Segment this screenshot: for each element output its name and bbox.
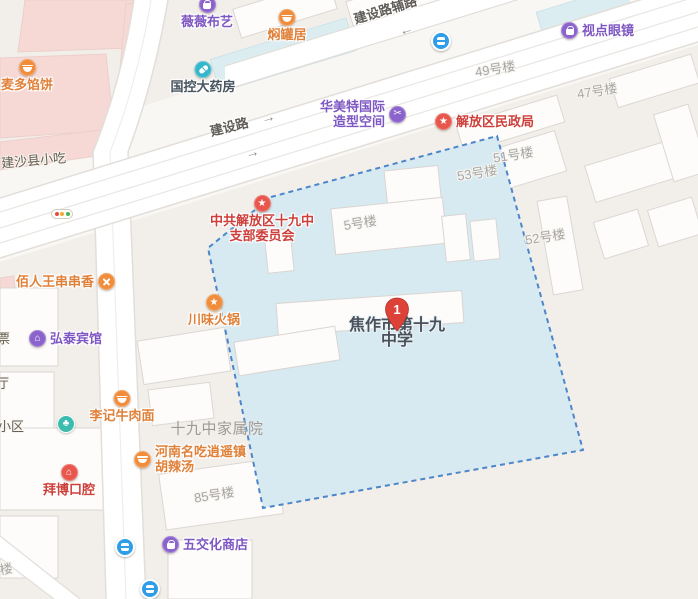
map-canvas[interactable]: 建设路辅路 建设路 → → ← 薇薇布艺 焖罐居 麦多馅饼 国控大药房 视点眼镜… (0, 0, 698, 599)
pin-number: 1 (384, 302, 410, 317)
clinic-house-icon: ⌂ (60, 464, 77, 481)
shopping-bag-icon (162, 536, 179, 553)
poi-eyeglasses-shop[interactable]: 视点眼镜 (561, 22, 634, 39)
poi-pharmacy[interactable]: 国控大药房 (170, 61, 235, 94)
area-label: 十九中家属院 (170, 418, 263, 439)
scissors-icon: ✂ (389, 106, 406, 123)
government-star-icon: ★ (435, 113, 452, 130)
location-pin-icon[interactable]: 1 (384, 297, 410, 338)
area-label: 小区 (0, 416, 24, 435)
food-bowl-icon (113, 390, 130, 407)
poi-hulatang-restaurant[interactable]: 河南名吃逍遥镇 胡辣汤 (134, 444, 246, 474)
area-label: 票 (0, 328, 10, 347)
poi-bairenwang-skewers[interactable]: 佰人王串串香 (16, 273, 115, 290)
government-star-icon: ★ (253, 195, 270, 212)
poi-hongtai-hotel[interactable]: ⌂ 弘泰宾馆 (29, 330, 102, 347)
park-tree-icon[interactable]: ♣ (57, 415, 75, 433)
poi-liji-beef-noodles[interactable]: 李记牛肉面 (89, 390, 154, 423)
poi-dental-clinic[interactable]: ⌂ 拜博口腔 (43, 464, 95, 497)
hotel-house-icon: ⌂ (29, 330, 46, 347)
bus-stop-icon[interactable] (115, 537, 135, 557)
bus-stop-icon[interactable] (140, 579, 160, 599)
food-bowl-icon (18, 59, 35, 76)
food-bowl-icon (278, 9, 295, 26)
poi-maiduo-pie[interactable]: 麦多馅饼 (1, 59, 53, 92)
traffic-light-icon (51, 209, 73, 219)
cutlery-x-icon (98, 273, 115, 290)
star-icon: ★ (205, 294, 222, 311)
poi-sichuan-hotpot[interactable]: ★ 川味火锅 (188, 294, 240, 327)
food-bowl-icon (134, 451, 151, 468)
poi-hairstyle-studio[interactable]: 华美特国际 造型空间 ✂ (320, 99, 406, 129)
bus-stop-icon[interactable] (431, 31, 451, 51)
pharmacy-capsule-icon (194, 61, 211, 78)
poi-party-branch-committee[interactable]: ★ 中共解放区十九中 支部委员会 (210, 195, 314, 243)
shopping-bag-icon (561, 22, 578, 39)
area-label: 厅 (0, 373, 9, 392)
shopping-bag-icon (198, 0, 215, 13)
poi-weiwei-fabric[interactable]: 薇薇布艺 (181, 0, 233, 29)
poi-hardware-store[interactable]: 五交化商店 (162, 536, 248, 553)
poi-menguanju[interactable]: 焖罐居 (267, 9, 306, 42)
poi-civil-affairs-bureau[interactable]: ★ 解放区民政局 (435, 113, 534, 130)
